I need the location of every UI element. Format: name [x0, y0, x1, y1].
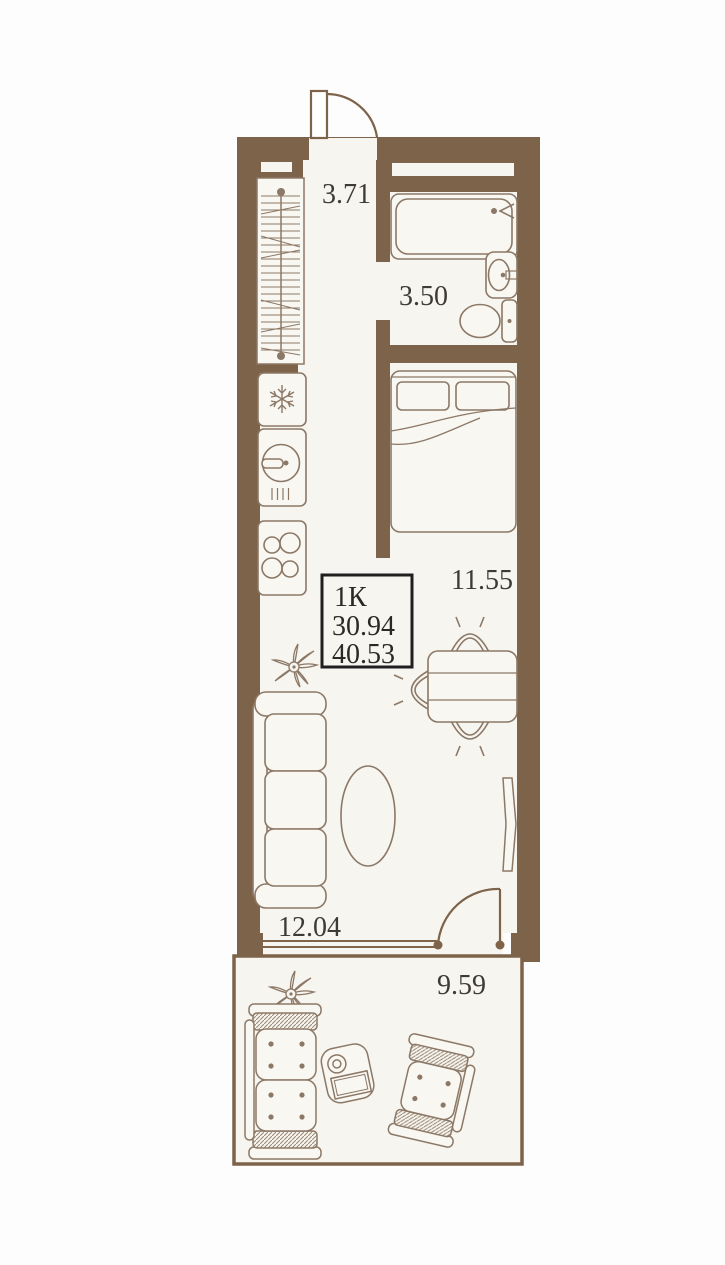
unit-info-box: 1К 30.94 40.53	[322, 575, 412, 670]
pillow	[456, 382, 509, 410]
floor-plan-svg: 3.71 3.50 11.55 12.04 9.59 1К 30.94 40.5…	[0, 0, 725, 1265]
sofa-cushion	[265, 771, 326, 829]
hinge-dot	[434, 941, 443, 950]
tub-faucet-dot	[491, 208, 497, 214]
fridge	[258, 373, 306, 426]
kitchen-sink	[258, 429, 306, 506]
bathtub	[391, 194, 517, 259]
sofa-cushion	[265, 714, 326, 771]
living-room-area-label: 12.04	[278, 912, 341, 943]
hinge-dot	[496, 941, 505, 950]
bedroom-area-label: 11.55	[451, 565, 513, 596]
wardrobe	[257, 178, 304, 364]
unit-type-label: 1К	[334, 582, 367, 613]
unit-living-area: 30.94	[332, 611, 395, 642]
sofa-cushion	[265, 829, 326, 886]
washbasin	[486, 252, 517, 298]
pillow	[397, 382, 449, 410]
unit-total-area: 40.53	[332, 639, 395, 670]
sofa	[253, 692, 326, 908]
stove	[258, 521, 306, 595]
hallway-area-label: 3.71	[322, 179, 371, 210]
floor-plan-canvas: 3.71 3.50 11.55 12.04 9.59 1К 30.94 40.5…	[0, 0, 725, 1265]
bed	[391, 371, 516, 532]
bathroom-area-label: 3.50	[399, 281, 448, 312]
faucet-dot	[284, 461, 289, 466]
entrance-door-leaf	[311, 91, 327, 138]
balcony-area-label: 9.59	[437, 970, 486, 1001]
